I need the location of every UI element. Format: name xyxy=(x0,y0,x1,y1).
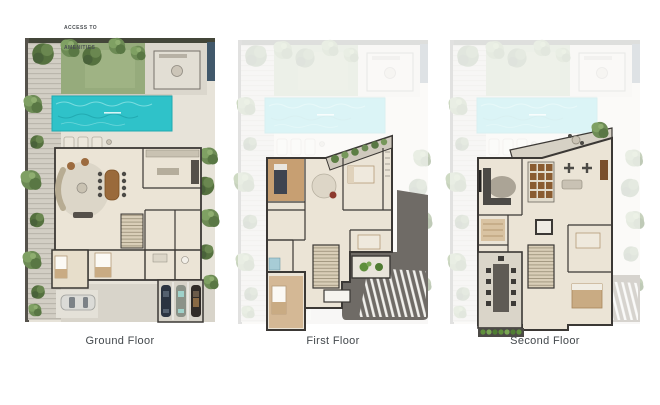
floorplan-sheet: ACCESS TO AMENITIES Ground Floor First F… xyxy=(0,0,660,405)
second-floor-plan xyxy=(446,40,645,337)
access-note-line2: AMENITIES xyxy=(64,45,97,52)
access-to-amenities-note: ACCESS TO AMENITIES xyxy=(64,12,97,58)
first-floor-label: First Floor xyxy=(238,335,428,347)
access-note-line1: ACCESS TO xyxy=(64,25,97,32)
second-floor-label: Second Floor xyxy=(450,335,640,347)
first-floor-plan xyxy=(234,40,433,330)
ground-floor-plan xyxy=(21,38,220,322)
ground-floor-label: Ground Floor xyxy=(25,335,215,347)
